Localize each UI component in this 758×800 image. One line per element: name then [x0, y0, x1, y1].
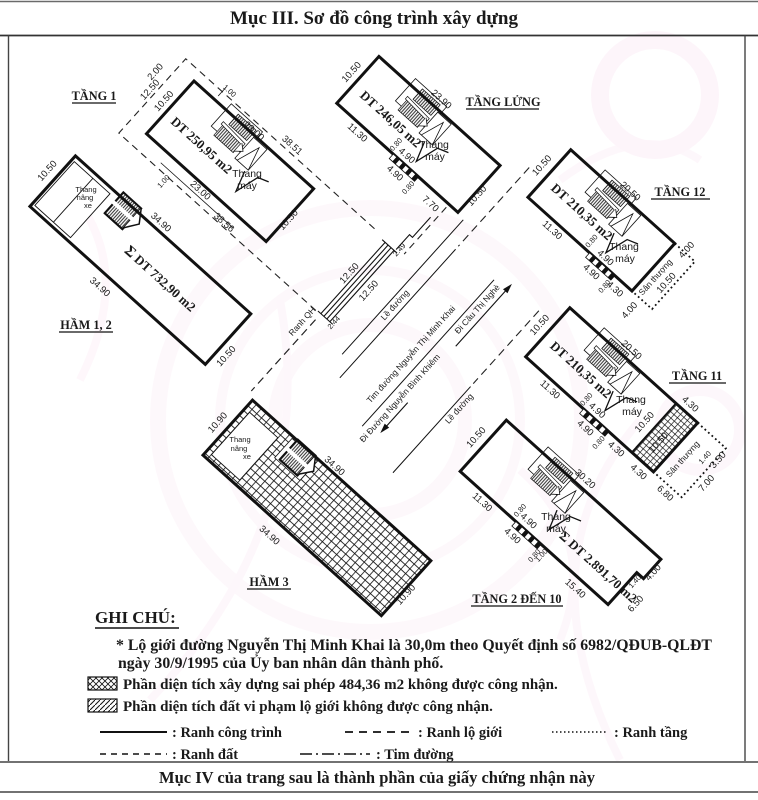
svg-text:Thang: Thang — [616, 394, 646, 406]
svg-text:Thang: Thang — [232, 168, 262, 180]
svg-text:: Ranh lộ giới: : Ranh lộ giới — [418, 725, 502, 741]
svg-text:Phần diện tích đất vi phạm lộ: Phần diện tích đất vi phạm lộ giới không… — [123, 699, 493, 715]
svg-text:máy: máy — [425, 151, 446, 163]
svg-text:* Lộ giới đường Nguyễn Thị Min: * Lộ giới đường Nguyễn Thị Minh Khai là … — [116, 637, 712, 654]
svg-text:TẦNG 1: TẦNG 1 — [72, 88, 117, 103]
svg-text:Thang: Thang — [541, 511, 571, 523]
svg-text:Thang: Thang — [419, 139, 449, 151]
svg-text:: Ranh đất: : Ranh đất — [172, 747, 238, 763]
svg-text:GHI CHÚ:: GHI CHÚ: — [95, 608, 176, 627]
svg-text:máy: máy — [237, 180, 258, 192]
svg-text:Mục IV của trang sau là thành: Mục IV của trang sau là thành phần của g… — [159, 768, 596, 787]
svg-text:HẦM 1, 2: HẦM 1, 2 — [60, 317, 112, 332]
svg-text:: Tim đường: : Tim đường — [376, 747, 454, 763]
svg-text:ngày 30/9/1995 của Ủy ban nhân: ngày 30/9/1995 của Ủy ban nhân dân thành… — [118, 653, 443, 672]
svg-text:Mục III. Sơ đồ công trình xây: Mục III. Sơ đồ công trình xây dựng — [230, 8, 518, 29]
svg-text:xe: xe — [84, 201, 92, 210]
svg-text:máy: máy — [546, 523, 567, 535]
svg-text:xe: xe — [243, 452, 251, 461]
svg-text:HẦM 3: HẦM 3 — [249, 574, 288, 589]
svg-text:TẦNG 12: TẦNG 12 — [655, 184, 706, 199]
svg-text:máy: máy — [622, 406, 643, 418]
svg-text:TẦNG LỬNG: TẦNG LỬNG — [465, 94, 540, 109]
svg-text:Phần diện tích xây dựng sai ph: Phần diện tích xây dựng sai phép 484,36 … — [123, 677, 558, 693]
svg-text:TẦNG 11: TẦNG 11 — [672, 368, 722, 383]
svg-text:TẦNG 2 ĐẾN 10: TẦNG 2 ĐẾN 10 — [472, 591, 561, 606]
svg-text:Thang: Thang — [229, 435, 250, 444]
svg-text:: Ranh công trình: : Ranh công trình — [172, 725, 282, 741]
svg-text:: Ranh tầng: : Ranh tầng — [614, 725, 688, 741]
svg-text:Thang: Thang — [609, 241, 639, 253]
svg-text:máy: máy — [615, 253, 636, 265]
